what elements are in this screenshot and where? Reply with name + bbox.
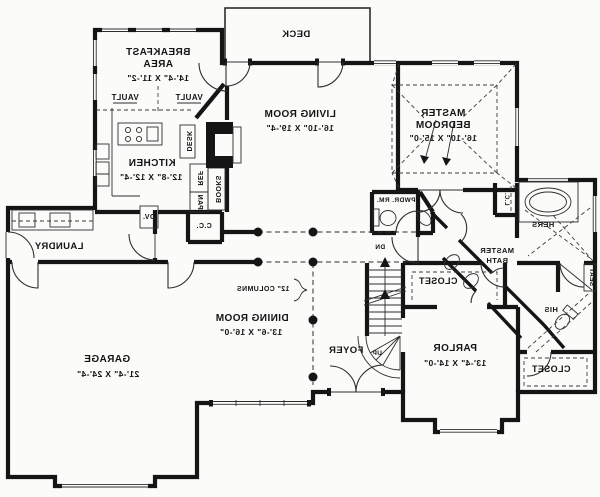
burner [136, 136, 141, 141]
fireplace [206, 122, 233, 168]
label-stair-up: UP [372, 350, 382, 357]
burner [125, 136, 130, 141]
label-parlor-dims: 13'-4" X 14'-0" [424, 358, 487, 368]
floor-plan-page: DECK BREAKFAST AREA 14'-4" X 11'-2" VAUL… [0, 0, 600, 497]
column-dot [309, 373, 318, 382]
label-laundry: LAUNDRY [34, 241, 83, 252]
label-deck: DECK [282, 29, 311, 40]
label-vault-1: VAULT [111, 93, 138, 102]
label-kitchen: KITCHEN [128, 158, 175, 169]
column-dot [254, 228, 263, 237]
label-garage-dims: 21'-4" X 24'-4" [77, 369, 140, 379]
label-master-bath-1: MASTER [480, 246, 514, 255]
label-living-dims: 16'-10" X 19'-4" [266, 123, 334, 133]
label-parlor: PARLOR [433, 343, 477, 354]
label-stair-dn: DN [375, 244, 385, 251]
garden-tub-inner [530, 192, 567, 212]
label-breakfast-2: AREA [143, 59, 173, 70]
label-refrigerator: REF [196, 170, 203, 186]
column-dot [309, 228, 318, 237]
label-hall-closet: CLOSET [418, 276, 457, 286]
powder-toilet [373, 209, 396, 226]
label-foyer: FOYER [329, 345, 364, 356]
label-linen-closet: L.C. [503, 193, 509, 206]
label-garage: GARAGE [84, 354, 130, 365]
label-dining-dims: 13'-6" X 16'-0" [220, 327, 283, 337]
label-coat-closet: C.C. [196, 223, 212, 230]
label-parlor-closet: CLOSET [531, 364, 570, 374]
label-master-dims: 16'-10" X 15'-0" [409, 133, 477, 143]
label-vault-2: VAULT [175, 93, 202, 102]
column-dot [254, 258, 263, 267]
label-columns: 12" COLUMNS [237, 286, 290, 293]
columns-brace [294, 279, 307, 301]
vanity-sink [461, 271, 482, 292]
burner [136, 127, 141, 132]
column-dot [309, 258, 318, 267]
label-powder-room: PWDR. RM. [377, 197, 416, 204]
dryer [50, 213, 70, 227]
label-pantry: PAN [196, 194, 203, 209]
bath-fixtures [373, 182, 596, 333]
floor-plan-drawing: DECK BREAKFAST AREA 14'-4" X 11'-2" VAUL… [0, 0, 600, 497]
column-dot [309, 316, 318, 325]
label-breakfast-dims: 14'-4" X 11'-2" [127, 73, 189, 83]
colonnade [254, 228, 419, 386]
label-dining: DINING ROOM [215, 313, 288, 324]
burner [125, 127, 130, 132]
label-seat: SEAT [588, 268, 595, 286]
washer [19, 213, 35, 227]
label-living: LIVING ROOM [264, 109, 336, 120]
label-books: BOOKS [214, 175, 221, 203]
label-hers: HERS [532, 220, 554, 229]
label-master-bath-2: BATH [486, 256, 508, 265]
label-kitchen-dims: 12'-8" X 12'-4" [120, 172, 183, 182]
label-desk: DESK [185, 130, 192, 151]
label-breakfast-1: BREAKFAST [126, 47, 191, 58]
label-oven: OV. [143, 214, 156, 221]
label-master-2: BEDROOM [415, 120, 470, 131]
hearth [233, 127, 241, 163]
label-master-1: MASTER [420, 108, 465, 119]
label-his: HIS [544, 305, 558, 314]
